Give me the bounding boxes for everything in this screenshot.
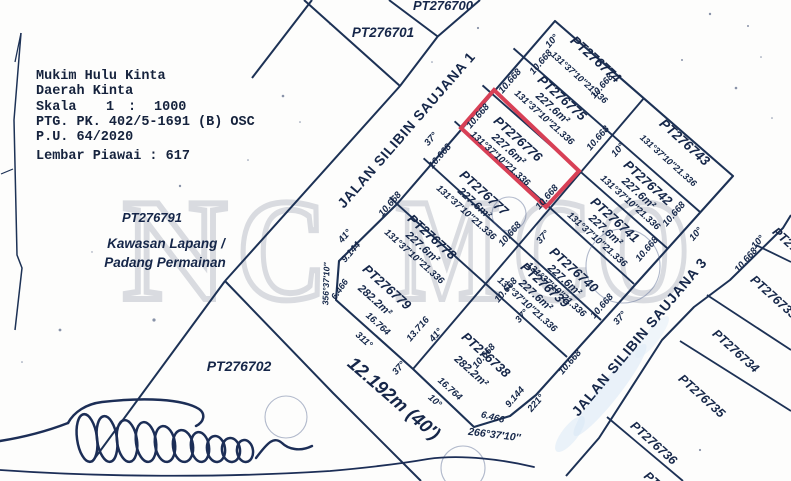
svg-text:1000: 1000	[154, 100, 186, 115]
svg-text:6.466: 6.466	[329, 276, 351, 301]
svg-text:221°: 221°	[525, 392, 547, 415]
svg-text:37°: 37°	[422, 130, 440, 148]
svg-text:PT276702: PT276702	[207, 358, 272, 374]
svg-text:Padang Permainan: Padang Permainan	[104, 255, 226, 270]
svg-text:Kawasan Lapang /: Kawasan Lapang /	[107, 236, 226, 251]
svg-text:1: 1	[106, 100, 114, 115]
svg-text:PT276733: PT276733	[748, 273, 791, 322]
svg-text:10.668: 10.668	[584, 123, 612, 153]
svg-text:PT276734: PT276734	[710, 327, 762, 376]
svg-text:356°37′10″: 356°37′10″	[320, 262, 332, 306]
svg-text:PT276791: PT276791	[122, 210, 182, 225]
svg-text:PT276732: PT276732	[770, 225, 791, 274]
svg-text:PT276736: PT276736	[628, 419, 681, 469]
svg-text:Lembar Piawai : 617: Lembar Piawai : 617	[36, 149, 190, 164]
svg-text:Daerah Kinta: Daerah Kinta	[36, 84, 133, 99]
svg-text:Mukim Hulu Kinta: Mukim Hulu Kinta	[36, 69, 166, 84]
svg-text:PT276701: PT276701	[352, 25, 414, 40]
svg-text:266°37′10″: 266°37′10″	[467, 426, 523, 445]
svg-text:PT276700: PT276700	[413, 0, 474, 13]
svg-text:Skala: Skala	[36, 100, 77, 115]
svg-text:P.U. 64/2020: P.U. 64/2020	[36, 130, 133, 145]
svg-text:10°: 10°	[609, 141, 627, 159]
svg-text:PT276735: PT276735	[676, 372, 729, 422]
svg-text::: :	[128, 100, 136, 115]
svg-text:PTG. PK. 402/5-1691 (B) OSC: PTG. PK. 402/5-1691 (B) OSC	[36, 115, 255, 130]
